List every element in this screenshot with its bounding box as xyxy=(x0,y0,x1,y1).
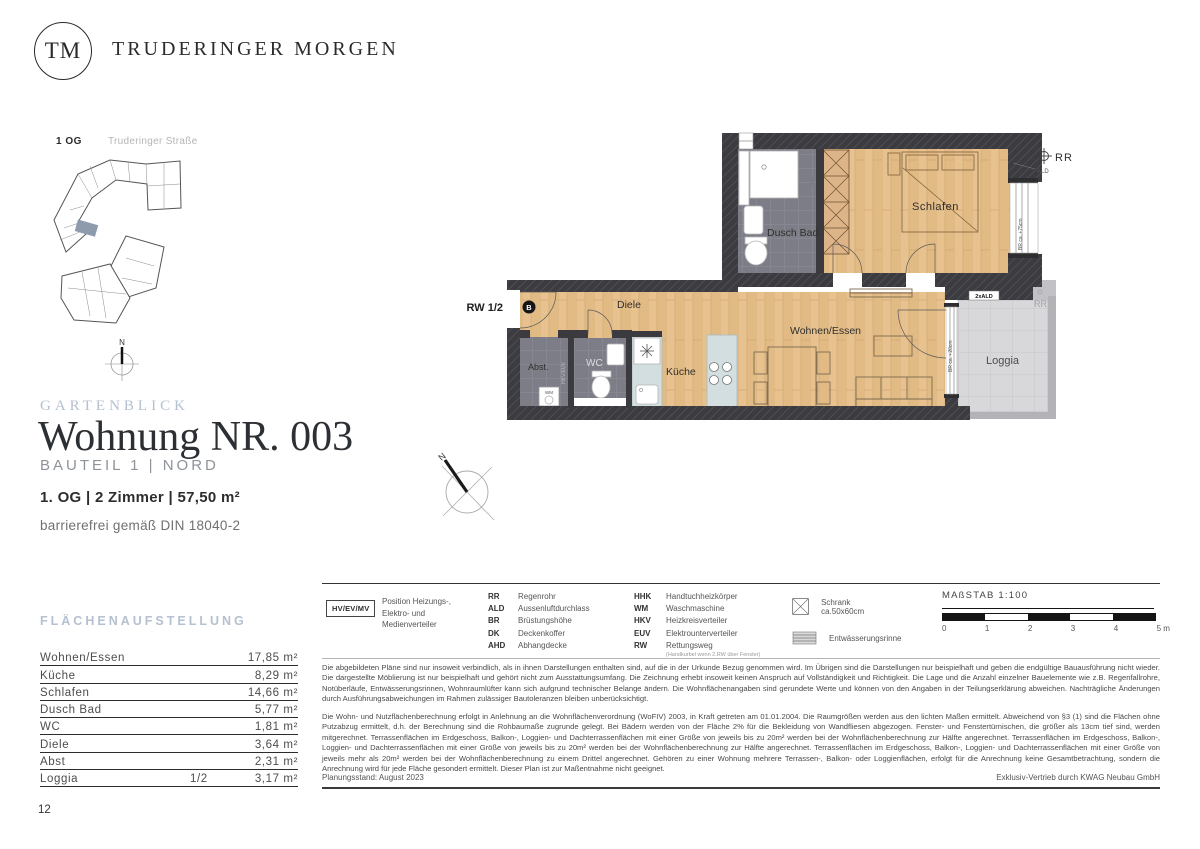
legend-abbr: WM xyxy=(634,603,666,615)
scale-bar xyxy=(942,613,1156,621)
hkv-euv-label: HKV/EUV xyxy=(561,361,567,384)
table-row: Abst 2,31 m² xyxy=(40,753,298,770)
table-row: Dusch Bad 5,77 m² xyxy=(40,701,298,718)
distribution-note: Exklusiv-Vertrieb durch KWAG Neubau GmbH xyxy=(996,773,1160,782)
scale-tick: 5 m xyxy=(1157,624,1170,633)
brochure-page: TM TRUDERINGER MORGEN 1 OG Truderinger S… xyxy=(0,0,1200,849)
row-value: 17,85 m² xyxy=(236,652,298,664)
room-label-abst: Abst. xyxy=(528,362,549,372)
brand-logo-initials: TM xyxy=(45,38,82,64)
parapet-loggia-door-label: BR ca. +20cm xyxy=(948,340,954,372)
cabinet-symbol-icon xyxy=(792,594,809,619)
siteplan-building-north xyxy=(54,160,181,252)
row-value: 3,17 m² xyxy=(236,773,298,785)
siteplan-floor-label: 1 OG xyxy=(56,136,82,147)
plan-compass: N xyxy=(436,444,500,538)
rr-top-label: RR xyxy=(1055,152,1073,164)
legend-abbr: HKV xyxy=(634,615,666,627)
wm-label: WM xyxy=(545,390,553,395)
hhk-label: HHK xyxy=(810,176,815,186)
legend-abbr: BR xyxy=(488,615,518,627)
brand-logo: TM xyxy=(34,22,92,80)
legend-name: Aussenluftdurchlass xyxy=(518,603,590,615)
row-fraction: 1/2 xyxy=(190,773,236,785)
scale-tick: 2 xyxy=(1028,624,1032,633)
building-section-label: BAUTEIL 1 | NORD xyxy=(40,457,219,474)
row-value: 1,81 m² xyxy=(236,721,298,733)
row-value: 3,64 m² xyxy=(236,739,298,751)
footer-divider xyxy=(322,787,1160,789)
row-label: WC xyxy=(40,721,190,733)
scale-tick: 4 xyxy=(1114,624,1118,633)
legend-column-2: HHKHandtuchheizkörper WMWaschmaschine HK… xyxy=(634,591,760,658)
room-label-wc: WC xyxy=(586,358,603,369)
entrance-marker-label: B xyxy=(526,303,532,312)
wardrobe xyxy=(823,150,849,254)
page-number: 12 xyxy=(38,804,51,816)
legend-abbr: EUV xyxy=(634,628,666,640)
page-title: Wohnung NR. 003 xyxy=(38,413,353,461)
hv-ev-mv-box: HV/EV/MV xyxy=(326,600,375,617)
legend-abbr: HHK xyxy=(634,591,666,603)
table-row: Wohnen/Essen 17,85 m² xyxy=(40,649,298,666)
brand-name: TRUDERINGER MORGEN xyxy=(112,38,399,61)
drainage-symbol-icon xyxy=(792,631,817,645)
disclaimer-paragraph-2: Die Wohn- und Nutzflächenberechnung erfo… xyxy=(322,712,1160,775)
area-table-heading: FLÄCHENAUFSTELLUNG xyxy=(40,614,247,628)
unit-details: 1. OG | 2 Zimmer | 57,50 m² xyxy=(40,489,240,506)
legend-name: Regenrohr xyxy=(518,591,556,603)
legend-name: Heizkreisverteiler xyxy=(666,615,727,627)
legend-name: Brüstungshöhe xyxy=(518,615,572,627)
planning-status: Planungsstand: August 2023 xyxy=(322,773,424,782)
legend-name: Deckenkoffer xyxy=(518,628,565,640)
legend-name: Waschmaschine xyxy=(666,603,724,615)
row-value: 2,31 m² xyxy=(236,756,298,768)
row-label: Dusch Bad xyxy=(40,704,190,716)
siteplan-street-label: Truderinger Straße xyxy=(108,136,198,147)
siteplan-compass-label: N xyxy=(119,338,125,347)
disclaimer-section: Die abgebildeten Pläne sind nur insoweit… xyxy=(322,658,1160,775)
room-label-wohnen-essen: Wohnen/Essen xyxy=(790,325,861,337)
rescue-route-label: RW 1/2 xyxy=(467,302,503,314)
table-row: Küche 8,29 m² xyxy=(40,666,298,683)
hv-ev-mv-description: Position Heizungs-, Elektro- und Medienv… xyxy=(382,596,478,631)
legend-abbr: AHD xyxy=(488,640,518,652)
row-label: Diele xyxy=(40,739,190,751)
cabinet-symbol-label: Schrank ca.50x60cm xyxy=(821,598,872,616)
scale-tick: 0 xyxy=(942,624,946,633)
ald-loggia-label: 2xALD xyxy=(975,294,992,300)
row-value: 8,29 m² xyxy=(236,670,298,682)
scale-tick: 1 xyxy=(985,624,989,633)
scale-topline xyxy=(942,608,1154,609)
legend-name: Handtuchheizkörper xyxy=(666,591,738,603)
room-label-kueche: Küche xyxy=(666,366,696,378)
rr-loggia-label: RR xyxy=(1034,299,1047,309)
legend-column-1: RRRegenrohr ALDAussenluftdurchlass BRBrü… xyxy=(488,591,590,652)
scale-tick: 3 xyxy=(1071,624,1075,633)
room-label-loggia: Loggia xyxy=(986,355,1020,367)
legend-name: Abhangdecke xyxy=(518,640,567,652)
scale-label: MAßSTAB 1:100 xyxy=(942,590,1170,601)
table-row: Loggia 1/2 3,17 m² xyxy=(40,770,298,787)
row-label: Loggia xyxy=(40,773,190,785)
legend-abbr: RR xyxy=(488,591,518,603)
parapet-window-label: BR ca. +75cm xyxy=(1018,218,1024,250)
legend-name: Elektrounterverteiler xyxy=(666,628,738,640)
drainage-symbol-label: Entwässerungsrinne xyxy=(829,634,901,643)
legend-section: HV/EV/MV Position Heizungs-, Elektro- un… xyxy=(322,583,1160,659)
legend-name: Rettungsweg xyxy=(666,640,713,652)
siteplan-compass: N xyxy=(105,338,139,381)
accessibility-note: barrierefrei gemäß DIN 18040-2 xyxy=(40,518,240,533)
row-label: Schlafen xyxy=(40,687,190,699)
scale-block: MAßSTAB 1:100 0 1 2 3 4 5 m xyxy=(942,590,1170,633)
room-label-diele: Diele xyxy=(617,299,641,311)
footer: Planungsstand: August 2023 Exklusiv-Vert… xyxy=(322,773,1160,782)
row-value: 5,77 m² xyxy=(236,704,298,716)
area-table: Wohnen/Essen 17,85 m² Küche 8,29 m² Schl… xyxy=(40,649,298,787)
row-value: 14,66 m² xyxy=(236,687,298,699)
disclaimer-paragraph-1: Die abgebildeten Pläne sind nur insoweit… xyxy=(322,663,1160,705)
room-label-duschbad: Dusch Bad xyxy=(767,227,819,239)
hob-star-icon xyxy=(640,344,654,358)
floor-plan-drawing: Schlafen Dusch Bad Diele Wohnen/Essen Kü… xyxy=(440,125,1085,425)
row-label: Abst xyxy=(40,756,190,768)
row-label: Küche xyxy=(40,670,190,682)
table-row: WC 1,81 m² xyxy=(40,718,298,735)
ald-top-label: ALD xyxy=(1037,169,1049,175)
room-label-schlafen: Schlafen xyxy=(912,201,959,213)
row-label: Wohnen/Essen xyxy=(40,652,190,664)
legend-abbr: DK xyxy=(488,628,518,640)
table-row: Schlafen 14,66 m² xyxy=(40,684,298,701)
legend-abbr: RW xyxy=(634,640,666,652)
scale-ticks: 0 1 2 3 4 5 m xyxy=(942,624,1170,633)
table-row: Diele 3,64 m² xyxy=(40,735,298,752)
site-plan-drawing: N xyxy=(34,148,246,403)
legend-abbr: ALD xyxy=(488,603,518,615)
